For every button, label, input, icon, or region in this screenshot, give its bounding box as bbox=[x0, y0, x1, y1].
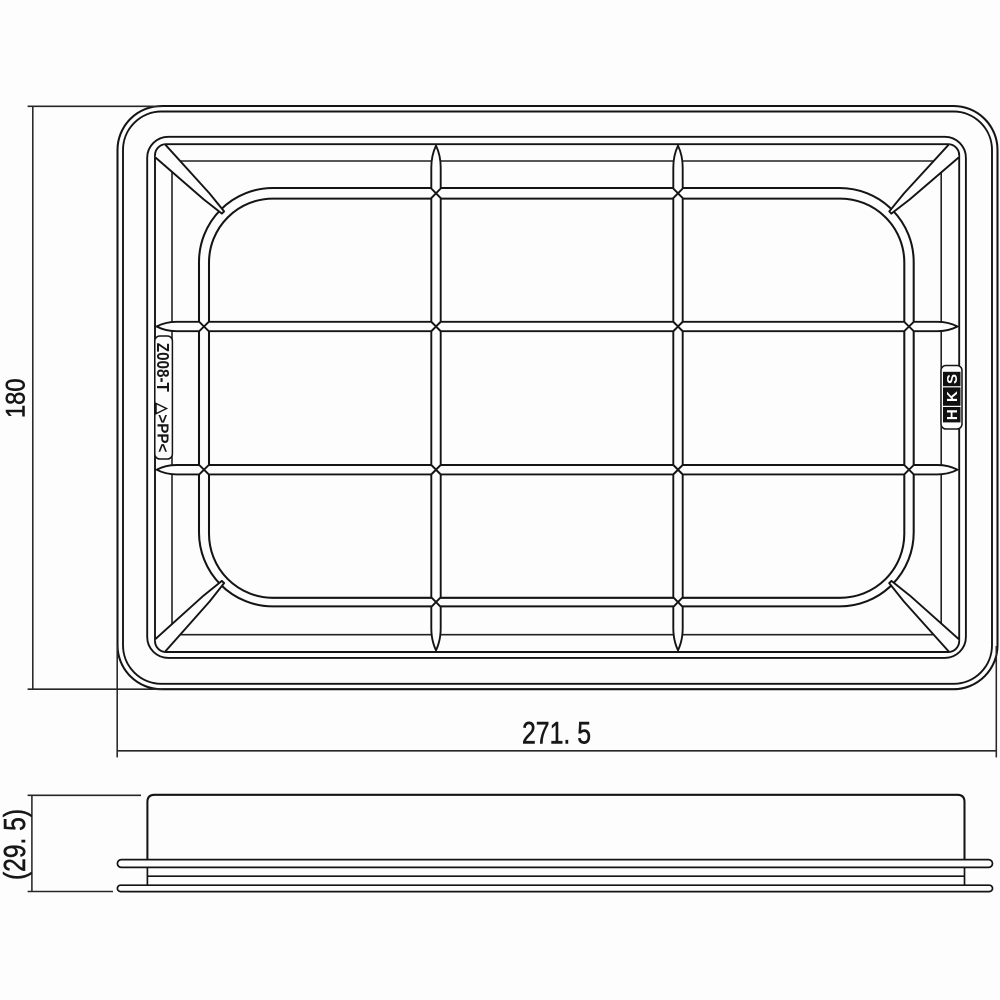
svg-text:△>PP<: △>PP< bbox=[153, 402, 170, 452]
svg-text:180: 180 bbox=[1, 379, 31, 419]
svg-text:K: K bbox=[944, 391, 961, 402]
svg-text:Z008-T: Z008-T bbox=[153, 343, 173, 392]
svg-text:271. 5: 271. 5 bbox=[522, 715, 591, 751]
svg-text:H: H bbox=[944, 409, 961, 420]
svg-text:(29. 5): (29. 5) bbox=[0, 809, 32, 880]
svg-text:S: S bbox=[944, 374, 961, 384]
